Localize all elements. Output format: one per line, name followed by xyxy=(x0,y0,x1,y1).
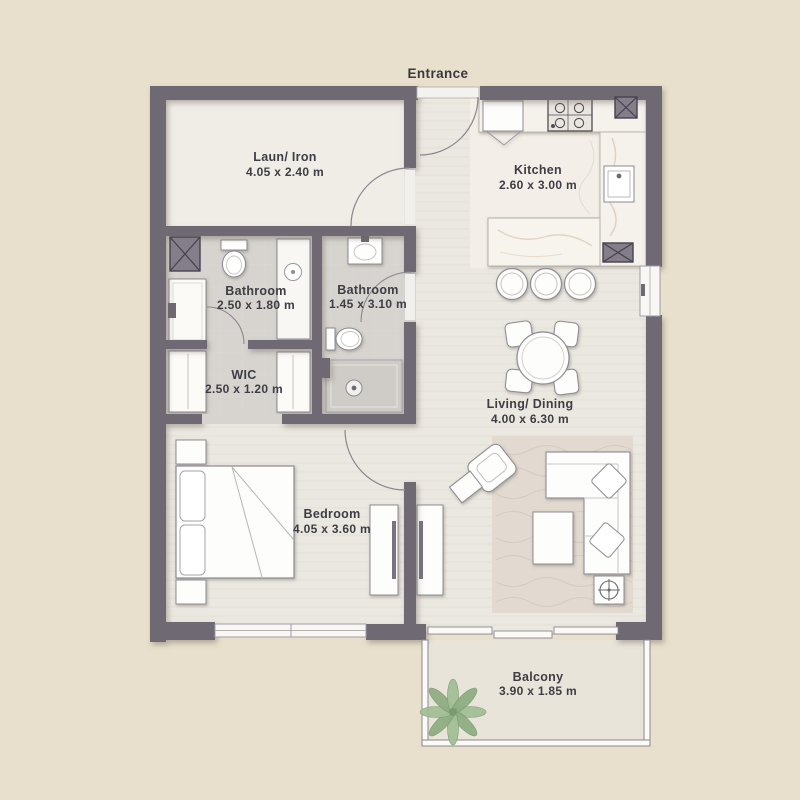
bathroom1-name: Bathroom xyxy=(225,284,286,298)
wall-bottom-t-cap xyxy=(366,624,426,640)
balcony-rail-left xyxy=(422,640,428,746)
living-name: Living/ Dining xyxy=(487,397,574,411)
tv-icon xyxy=(392,521,396,579)
living-dims: 4.00 x 6.30 m xyxy=(491,412,569,426)
bedroom-name: Bedroom xyxy=(304,507,361,521)
bedroom-dims: 4.05 x 3.60 m xyxy=(293,522,371,536)
wic-dims: 2.50 x 1.20 m xyxy=(205,382,283,396)
entrance-door-leaf xyxy=(417,87,479,98)
balcony-rail-right xyxy=(644,640,650,746)
bedroom-window xyxy=(215,624,366,637)
sink xyxy=(348,236,382,264)
entrance-label: Entrance xyxy=(408,66,469,81)
shower xyxy=(168,279,206,344)
laundry-name: Laun/ Iron xyxy=(253,150,316,164)
tv-icon xyxy=(419,521,423,579)
column-icon xyxy=(615,97,637,118)
nightstand-bottom xyxy=(176,580,206,604)
wall-bath-block-right-b xyxy=(404,322,416,424)
coffee-table xyxy=(533,512,573,564)
floor-lamp xyxy=(594,576,624,604)
kitchen-island xyxy=(488,218,600,266)
plant-icon xyxy=(420,679,486,745)
kitchen-name: Kitchen xyxy=(514,163,562,177)
column-icon xyxy=(170,237,200,271)
kitchen-sink xyxy=(604,166,634,202)
wall-left xyxy=(150,86,166,642)
wall-shower-stub xyxy=(322,358,330,378)
wall-bath-block-top xyxy=(166,226,416,236)
wall-bath1-wic-b xyxy=(248,340,312,349)
laundry-dims: 4.05 x 2.40 m xyxy=(246,165,324,179)
floorplan-page: Entrance Laun/ Iron 4.05 x 2.40 m Kitche… xyxy=(0,0,800,800)
tv-console-living xyxy=(417,505,443,595)
bed xyxy=(176,466,294,578)
wall-bottom-left-corner xyxy=(150,622,215,640)
laundry-door-opening xyxy=(405,170,415,224)
shower-tray xyxy=(326,360,402,412)
faucet-icon xyxy=(361,236,369,242)
wic-opening xyxy=(202,414,282,424)
wall-bath-divider xyxy=(312,236,322,414)
column-icon xyxy=(603,243,633,262)
bathroom2-name: Bathroom xyxy=(337,283,398,297)
tv-dresser-bedroom xyxy=(370,505,398,595)
wall-bath1-wic-a xyxy=(166,340,207,349)
shower-head-icon xyxy=(168,303,176,318)
pillow xyxy=(180,471,205,521)
dining-table xyxy=(517,332,569,384)
balcony-name: Balcony xyxy=(513,670,564,684)
wall-laundry-right xyxy=(404,100,416,168)
wall-bath-block-right-a xyxy=(404,226,416,272)
wall-bath-block-bottom-b xyxy=(282,414,416,424)
wic-name: WIC xyxy=(231,368,256,382)
bathroom1-dims: 2.50 x 1.80 m xyxy=(217,298,295,312)
stove xyxy=(548,99,592,131)
nightstand-top xyxy=(176,440,206,464)
bar-stools xyxy=(497,269,596,300)
balcony-dims: 3.90 x 1.85 m xyxy=(499,684,577,698)
floorplan-canvas: Entrance Laun/ Iron 4.05 x 2.40 m Kitche… xyxy=(0,0,800,800)
living-window xyxy=(640,266,660,316)
wall-right-upper xyxy=(646,86,662,267)
pillow xyxy=(180,525,205,575)
kitchen-dims: 2.60 x 3.00 m xyxy=(499,178,577,192)
toilet xyxy=(326,328,362,350)
wall-right-lower xyxy=(646,315,662,640)
wall-bedroom-living-divider xyxy=(404,482,416,624)
wall-bath-block-bottom-a xyxy=(166,414,202,424)
wall-top-left xyxy=(150,86,418,100)
window-handle-icon xyxy=(641,284,645,296)
bathroom2-dims: 1.45 x 3.10 m xyxy=(329,297,407,311)
wall-bottom-right-corner xyxy=(616,622,662,640)
toilet xyxy=(221,240,247,277)
